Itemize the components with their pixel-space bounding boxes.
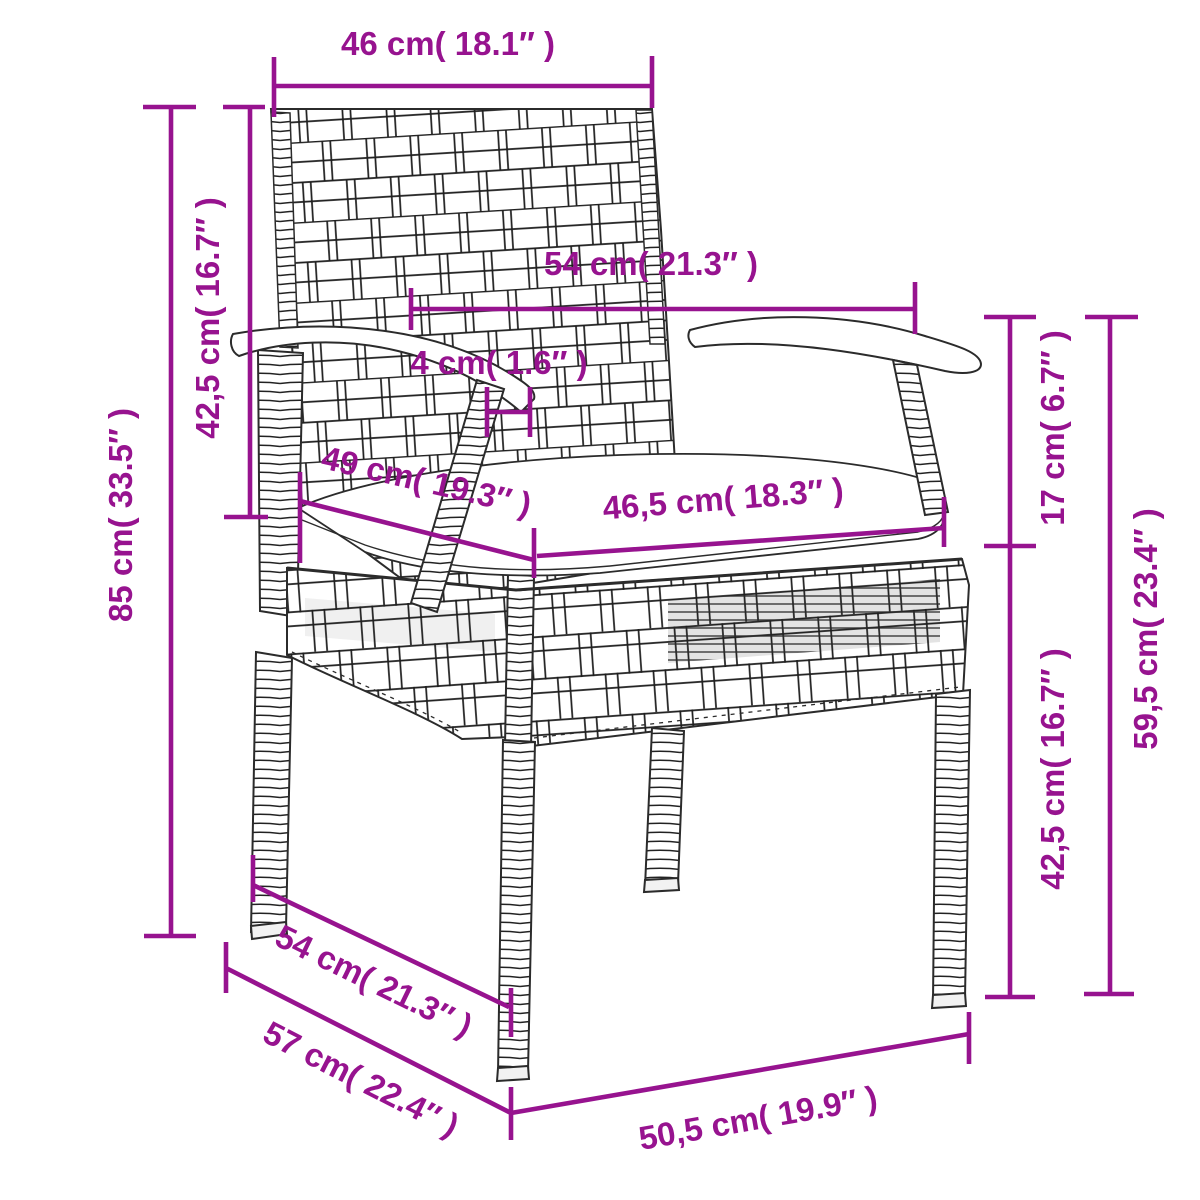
- svg-text:50,5 cm( 19.9″ ): 50,5 cm( 19.9″ ): [636, 1078, 880, 1156]
- svg-text:85 cm( 33.5″ ): 85 cm( 33.5″ ): [102, 408, 139, 622]
- svg-text:46 cm( 18.1″ ): 46 cm( 18.1″ ): [341, 25, 555, 62]
- svg-text:54 cm( 21.3″ ): 54 cm( 21.3″ ): [270, 917, 478, 1044]
- svg-text:59,5 cm( 23.4″ ): 59,5 cm( 23.4″ ): [1127, 508, 1164, 749]
- svg-text:17 cm( 6.7″ ): 17 cm( 6.7″ ): [1034, 330, 1071, 526]
- svg-text:57 cm( 22.4″ ): 57 cm( 22.4″ ): [258, 1014, 465, 1144]
- svg-text:42,5 cm( 16.7″ ): 42,5 cm( 16.7″ ): [1034, 648, 1071, 889]
- svg-text:4 cm( 1.6″ ): 4 cm( 1.6″ ): [410, 344, 587, 381]
- svg-text:42,5 cm( 16.7″ ): 42,5 cm( 16.7″ ): [189, 197, 226, 438]
- svg-text:54 cm( 21.3″ ): 54 cm( 21.3″ ): [544, 245, 758, 282]
